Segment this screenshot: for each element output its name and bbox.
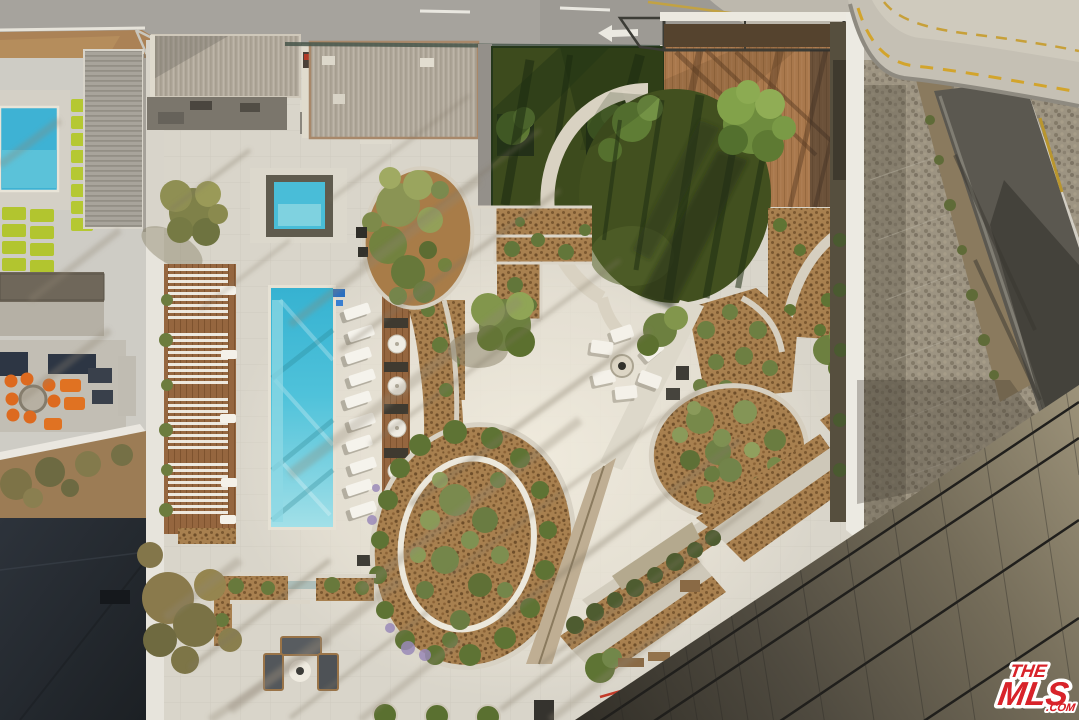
svg-text:.COM: .COM [1045, 702, 1076, 714]
